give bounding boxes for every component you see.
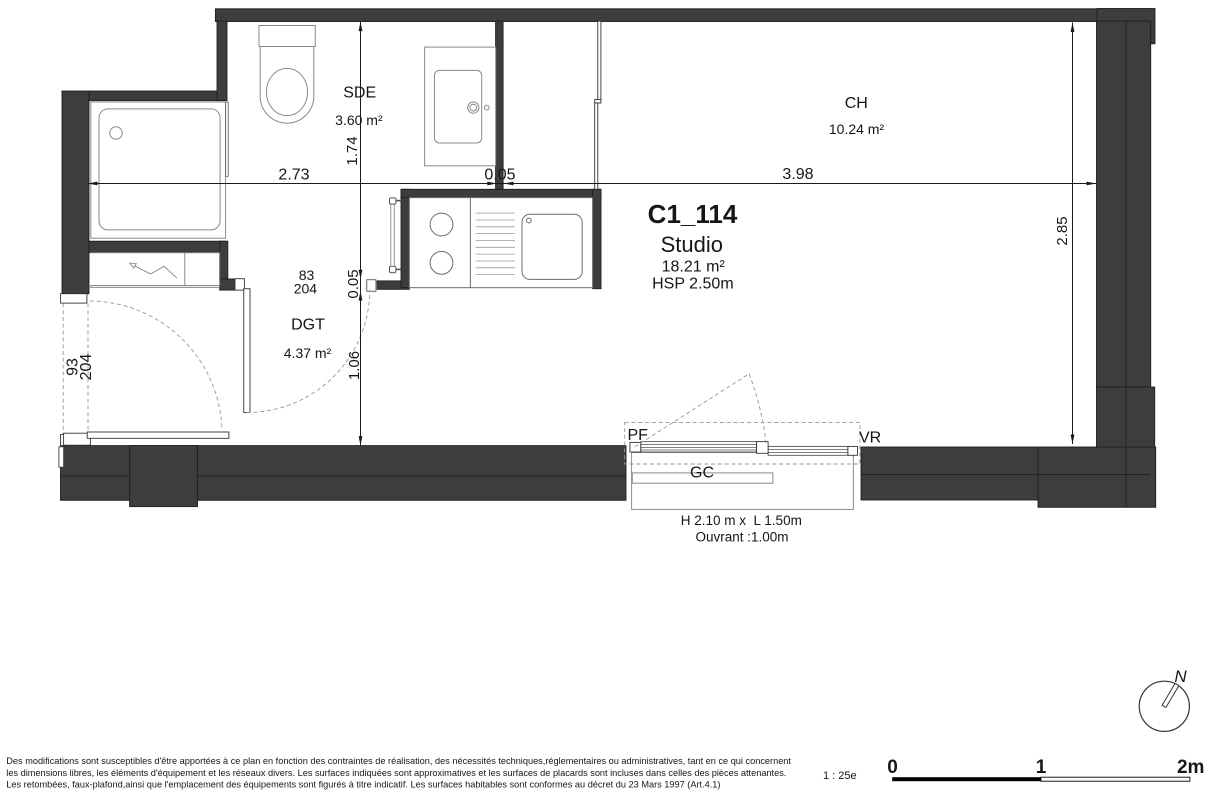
svg-text:18.21 m²: 18.21 m² xyxy=(662,259,726,276)
svg-text:VR: VR xyxy=(859,430,881,447)
svg-text:Ouvrant :1.00m: Ouvrant :1.00m xyxy=(695,530,788,545)
svg-text:PF: PF xyxy=(628,427,649,444)
svg-text:0: 0 xyxy=(887,757,898,778)
svg-text:3.98: 3.98 xyxy=(782,166,813,183)
svg-text:4.37 m²: 4.37 m² xyxy=(284,345,332,361)
svg-text:204: 204 xyxy=(78,354,95,381)
svg-text:GC: GC xyxy=(690,465,714,482)
svg-text:N: N xyxy=(1174,667,1187,686)
svg-text:DGT: DGT xyxy=(291,317,325,334)
svg-text:Les retombées, faux-plafond,ai: Les retombées, faux-plafond,ainsi que l'… xyxy=(6,780,720,790)
svg-text:CH: CH xyxy=(845,95,868,112)
svg-text:0.05: 0.05 xyxy=(484,167,515,184)
svg-text:2.73: 2.73 xyxy=(278,167,309,184)
svg-text:2m: 2m xyxy=(1177,757,1204,778)
svg-text:SDE: SDE xyxy=(343,85,376,102)
svg-text:0.05: 0.05 xyxy=(345,269,362,298)
svg-text:204: 204 xyxy=(294,281,318,297)
svg-text:C1_114: C1_114 xyxy=(648,199,738,229)
svg-text:Studio: Studio xyxy=(661,232,723,257)
svg-text:1.74: 1.74 xyxy=(344,136,361,165)
svg-text:10.24 m²: 10.24 m² xyxy=(829,121,885,137)
svg-text:les dimensions libres, les élé: les dimensions libres, les éléments d'éq… xyxy=(6,768,786,778)
svg-text:1 : 25e: 1 : 25e xyxy=(823,770,857,782)
svg-text:2.85: 2.85 xyxy=(1054,216,1071,245)
svg-text:H 2.10 m x L 1.50m: H 2.10 m x L 1.50m xyxy=(681,513,802,528)
svg-text:1.06: 1.06 xyxy=(346,351,363,380)
svg-text:Des modifications sont suscept: Des modifications sont susceptibles d'êt… xyxy=(6,756,791,766)
svg-text:HSP 2.50m: HSP 2.50m xyxy=(652,276,734,293)
svg-text:1: 1 xyxy=(1036,757,1047,778)
svg-text:3.60 m²: 3.60 m² xyxy=(335,112,383,128)
